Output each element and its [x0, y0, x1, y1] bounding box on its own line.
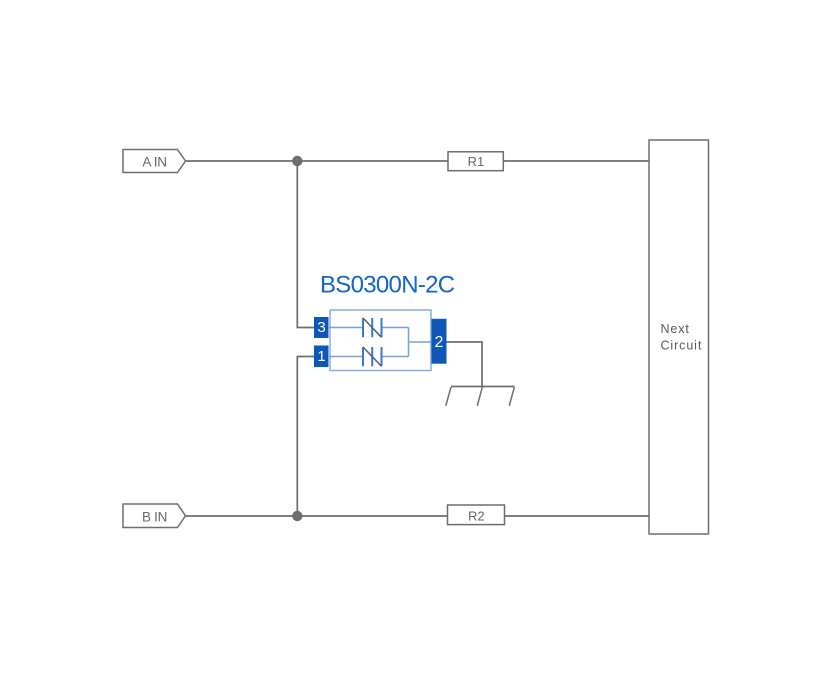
svg-text:Circuit: Circuit [661, 338, 703, 352]
svg-text:B IN: B IN [142, 509, 167, 524]
svg-text:R2: R2 [468, 508, 485, 523]
svg-text:BS0300N-2C: BS0300N-2C [320, 272, 455, 299]
svg-text:3: 3 [317, 319, 325, 336]
svg-text:2: 2 [434, 334, 443, 351]
svg-text:A IN: A IN [142, 155, 166, 170]
svg-text:1: 1 [317, 348, 325, 365]
svg-text:Next: Next [661, 322, 690, 336]
svg-text:R1: R1 [468, 154, 485, 169]
